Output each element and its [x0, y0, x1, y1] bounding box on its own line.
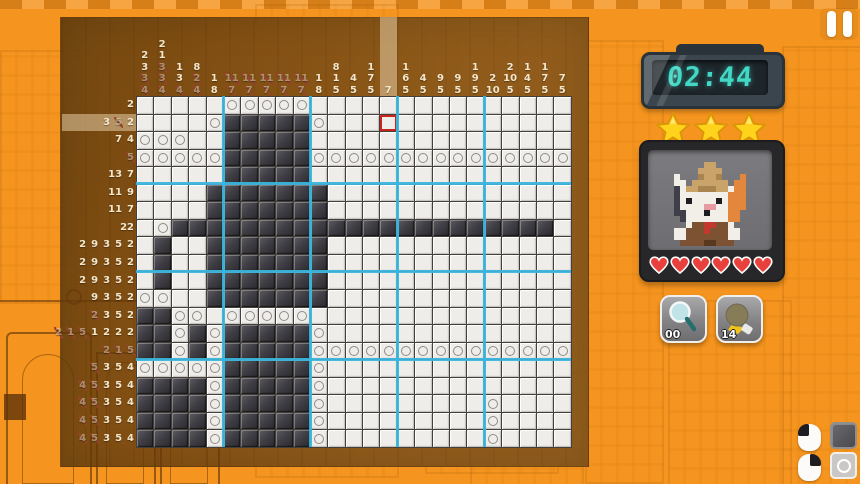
grid-cell-r7-c19[interactable]: [450, 202, 467, 220]
grid-cell-r10-c19[interactable]: [450, 255, 467, 273]
grid-cell-r8-c4[interactable]: [189, 220, 206, 238]
grid-cell-r12-c18[interactable]: [433, 290, 450, 308]
grid-cell-r14-c18[interactable]: [433, 325, 450, 343]
grid-cell-r10-c22[interactable]: [502, 255, 519, 273]
grid-cell-r2-c7[interactable]: [241, 115, 258, 133]
grid-cell-r7-c18[interactable]: [433, 202, 450, 220]
grid-cell-r4-c2[interactable]: [154, 150, 171, 168]
grid-cell-r19-c17[interactable]: [415, 413, 432, 431]
grid-cell-r3-c12[interactable]: [328, 132, 345, 150]
grid-cell-r10-c23[interactable]: [520, 255, 537, 273]
grid-cell-r12-c15[interactable]: [380, 290, 397, 308]
grid-cell-r4-c21[interactable]: [485, 150, 502, 168]
grid-cell-r16-c13[interactable]: [346, 360, 363, 378]
grid-cell-r16-c5[interactable]: [207, 360, 224, 378]
grid-cell-r2-c25[interactable]: [554, 115, 571, 133]
grid-cell-r13-c4[interactable]: [189, 308, 206, 326]
grid-cell-r5-c22[interactable]: [502, 167, 519, 185]
grid-cell-r15-c7[interactable]: [241, 343, 258, 361]
grid-cell-r11-c23[interactable]: [520, 272, 537, 290]
grid-cell-r20-c20[interactable]: [467, 430, 484, 448]
grid-cell-r7-c6[interactable]: [224, 202, 241, 220]
grid-cell-r17-c23[interactable]: [520, 378, 537, 396]
grid-cell-r1-c4[interactable]: [189, 97, 206, 115]
grid-cell-r16-c23[interactable]: [520, 360, 537, 378]
grid-cell-r12-c23[interactable]: [520, 290, 537, 308]
grid-cell-r15-c6[interactable]: [224, 343, 241, 361]
grid-cell-r5-c11[interactable]: [311, 167, 328, 185]
grid-cell-r8-c13[interactable]: [346, 220, 363, 238]
grid-cell-r14-c12[interactable]: [328, 325, 345, 343]
grid-cell-r6-c22[interactable]: [502, 185, 519, 203]
magnifier-powerup-button[interactable]: 00: [660, 295, 707, 343]
grid-cell-r14-c13[interactable]: [346, 325, 363, 343]
grid-cell-r19-c23[interactable]: [520, 413, 537, 431]
grid-cell-r10-c18[interactable]: [433, 255, 450, 273]
grid-cell-r14-c14[interactable]: [363, 325, 380, 343]
grid-cell-r10-c11[interactable]: [311, 255, 328, 273]
grid-cell-r4-c6[interactable]: [224, 150, 241, 168]
grid-cell-r8-c11[interactable]: [311, 220, 328, 238]
grid-cell-r10-c12[interactable]: [328, 255, 345, 273]
grid-cell-r13-c12[interactable]: [328, 308, 345, 326]
grid-cell-r20-c10[interactable]: [294, 430, 311, 448]
grid-cell-r14-c23[interactable]: [520, 325, 537, 343]
grid-cell-r2-c18[interactable]: [433, 115, 450, 133]
grid-cell-r10-c13[interactable]: [346, 255, 363, 273]
grid-cell-r8-c15[interactable]: [380, 220, 397, 238]
grid-cell-r9-c25[interactable]: [554, 237, 571, 255]
grid-cell-r10-c7[interactable]: [241, 255, 258, 273]
grid-cell-r18-c11[interactable]: [311, 395, 328, 413]
grid-cell-r14-c19[interactable]: [450, 325, 467, 343]
grid-cell-r12-c14[interactable]: [363, 290, 380, 308]
grid-cell-r4-c11[interactable]: [311, 150, 328, 168]
grid-cell-r14-c9[interactable]: [276, 325, 293, 343]
grid-cell-r15-c20[interactable]: [467, 343, 484, 361]
grid-cell-r20-c7[interactable]: [241, 430, 258, 448]
grid-cell-r13-c14[interactable]: [363, 308, 380, 326]
grid-cell-r17-c3[interactable]: [172, 378, 189, 396]
grid-cell-r17-c2[interactable]: [154, 378, 171, 396]
grid-cell-r3-c16[interactable]: [398, 132, 415, 150]
grid-cell-r11-c7[interactable]: [241, 272, 258, 290]
grid-cell-r1-c11[interactable]: [311, 97, 328, 115]
grid-cell-r2-c16[interactable]: [398, 115, 415, 133]
grid-cell-r10-c16[interactable]: [398, 255, 415, 273]
grid-cell-r16-c9[interactable]: [276, 360, 293, 378]
grid-cell-r15-c11[interactable]: [311, 343, 328, 361]
grid-cell-r15-c4[interactable]: [189, 343, 206, 361]
grid-cell-r12-c6[interactable]: [224, 290, 241, 308]
grid-cell-r15-c21[interactable]: [485, 343, 502, 361]
grid-cell-r15-c5[interactable]: [207, 343, 224, 361]
grid-cell-r9-c9[interactable]: [276, 237, 293, 255]
grid-cell-r1-c8[interactable]: [259, 97, 276, 115]
grid-cell-r5-c5[interactable]: [207, 167, 224, 185]
grid-cell-r19-c16[interactable]: [398, 413, 415, 431]
grid-cell-r11-c2[interactable]: [154, 272, 171, 290]
grid-cell-r7-c4[interactable]: [189, 202, 206, 220]
grid-cell-r7-c23[interactable]: [520, 202, 537, 220]
grid-cell-r1-c14[interactable]: [363, 97, 380, 115]
grid-cell-r3-c1[interactable]: [137, 132, 154, 150]
grid-cell-r14-c25[interactable]: [554, 325, 571, 343]
grid-cell-r16-c25[interactable]: [554, 360, 571, 378]
grid-cell-r13-c3[interactable]: [172, 308, 189, 326]
grid-cell-r20-c12[interactable]: [328, 430, 345, 448]
grid-cell-r8-c1[interactable]: [137, 220, 154, 238]
grid-cell-r6-c20[interactable]: [467, 185, 484, 203]
grid-cell-r5-c2[interactable]: [154, 167, 171, 185]
grid-cell-r6-c18[interactable]: [433, 185, 450, 203]
grid-cell-r12-c21[interactable]: [485, 290, 502, 308]
grid-cell-r19-c4[interactable]: [189, 413, 206, 431]
grid-cell-r19-c9[interactable]: [276, 413, 293, 431]
grid-cell-r2-c1[interactable]: [137, 115, 154, 133]
grid-cell-r15-c12[interactable]: [328, 343, 345, 361]
pause-button[interactable]: [820, 8, 858, 40]
grid-cell-r15-c17[interactable]: [415, 343, 432, 361]
grid-cell-r13-c18[interactable]: [433, 308, 450, 326]
grid-cell-r13-c20[interactable]: [467, 308, 484, 326]
grid-cell-r18-c15[interactable]: [380, 395, 397, 413]
grid-cell-r8-c17[interactable]: [415, 220, 432, 238]
grid-cell-r17-c11[interactable]: [311, 378, 328, 396]
grid-cell-r13-c7[interactable]: [241, 308, 258, 326]
grid-cell-r11-c20[interactable]: [467, 272, 484, 290]
grid-cell-r4-c9[interactable]: [276, 150, 293, 168]
grid-cell-r18-c25[interactable]: [554, 395, 571, 413]
grid-cell-r14-c16[interactable]: [398, 325, 415, 343]
grid-cell-r1-c6[interactable]: [224, 97, 241, 115]
grid-cell-r11-c13[interactable]: [346, 272, 363, 290]
grid-cell-r6-c3[interactable]: [172, 185, 189, 203]
grid-cell-r18-c1[interactable]: [137, 395, 154, 413]
grid-cell-r4-c5[interactable]: [207, 150, 224, 168]
grid-cell-r3-c23[interactable]: [520, 132, 537, 150]
grid-cell-r3-c5[interactable]: [207, 132, 224, 150]
grid-cell-r4-c16[interactable]: [398, 150, 415, 168]
grid-cell-r20-c9[interactable]: [276, 430, 293, 448]
grid-cell-r4-c15[interactable]: [380, 150, 397, 168]
grid-cell-r5-c12[interactable]: [328, 167, 345, 185]
grid-cell-r11-c19[interactable]: [450, 272, 467, 290]
grid-cell-r16-c18[interactable]: [433, 360, 450, 378]
grid-cell-r3-c8[interactable]: [259, 132, 276, 150]
grid-cell-r18-c21[interactable]: [485, 395, 502, 413]
grid-cell-r20-c5[interactable]: [207, 430, 224, 448]
grid-cell-r1-c24[interactable]: [537, 97, 554, 115]
grid-cell-r6-c1[interactable]: [137, 185, 154, 203]
grid-cell-r5-c23[interactable]: [520, 167, 537, 185]
grid-cell-r1-c25[interactable]: [554, 97, 571, 115]
grid-cell-r12-c25[interactable]: [554, 290, 571, 308]
grid-cell-r3-c20[interactable]: [467, 132, 484, 150]
grid-cell-r9-c21[interactable]: [485, 237, 502, 255]
grid-cell-r8-c8[interactable]: [259, 220, 276, 238]
grid-cell-r20-c13[interactable]: [346, 430, 363, 448]
grid-cell-r17-c20[interactable]: [467, 378, 484, 396]
grid-cell-r11-c4[interactable]: [189, 272, 206, 290]
grid-cell-r3-c6[interactable]: [224, 132, 241, 150]
grid-cell-r2-c9[interactable]: [276, 115, 293, 133]
grid-cell-r10-c24[interactable]: [537, 255, 554, 273]
grid-cell-r1-c2[interactable]: [154, 97, 171, 115]
grid-cell-r18-c22[interactable]: [502, 395, 519, 413]
grid-cell-r20-c2[interactable]: [154, 430, 171, 448]
grid-cell-r7-c13[interactable]: [346, 202, 363, 220]
grid-cell-r6-c21[interactable]: [485, 185, 502, 203]
grid-cell-r6-c16[interactable]: [398, 185, 415, 203]
grid-cell-r4-c3[interactable]: [172, 150, 189, 168]
grid-cell-r9-c19[interactable]: [450, 237, 467, 255]
grid-cell-r15-c23[interactable]: [520, 343, 537, 361]
grid-cell-r17-c17[interactable]: [415, 378, 432, 396]
grid-cell-r5-c8[interactable]: [259, 167, 276, 185]
grid-cell-r18-c12[interactable]: [328, 395, 345, 413]
fill-tool-tile[interactable]: [830, 422, 857, 449]
grid-cell-r19-c22[interactable]: [502, 413, 519, 431]
grid-cell-r13-c17[interactable]: [415, 308, 432, 326]
grid-cell-r18-c6[interactable]: [224, 395, 241, 413]
grid-cell-r11-c5[interactable]: [207, 272, 224, 290]
grid-cell-r8-c14[interactable]: [363, 220, 380, 238]
grid-cell-r16-c6[interactable]: [224, 360, 241, 378]
grid-cell-r2-c4[interactable]: [189, 115, 206, 133]
grid-cell-r13-c24[interactable]: [537, 308, 554, 326]
grid-cell-r13-c19[interactable]: [450, 308, 467, 326]
grid-cell-r10-c4[interactable]: [189, 255, 206, 273]
grid-cell-r18-c24[interactable]: [537, 395, 554, 413]
grid-cell-r20-c8[interactable]: [259, 430, 276, 448]
grid-cell-r18-c13[interactable]: [346, 395, 363, 413]
grid-cell-r20-c24[interactable]: [537, 430, 554, 448]
grid-cell-r2-c19[interactable]: [450, 115, 467, 133]
grid-cell-r1-c17[interactable]: [415, 97, 432, 115]
grid-cell-r4-c4[interactable]: [189, 150, 206, 168]
grid-cell-r3-c7[interactable]: [241, 132, 258, 150]
grid-cell-r18-c23[interactable]: [520, 395, 537, 413]
grid-cell-r11-c15[interactable]: [380, 272, 397, 290]
grid-cell-r2-c22[interactable]: [502, 115, 519, 133]
grid-cell-r19-c12[interactable]: [328, 413, 345, 431]
grid-cell-r8-c10[interactable]: [294, 220, 311, 238]
grid-cell-r3-c22[interactable]: [502, 132, 519, 150]
grid-cell-r7-c10[interactable]: [294, 202, 311, 220]
grid-cell-r17-c14[interactable]: [363, 378, 380, 396]
grid-cell-r4-c17[interactable]: [415, 150, 432, 168]
grid-cell-r9-c6[interactable]: [224, 237, 241, 255]
grid-cell-r10-c5[interactable]: [207, 255, 224, 273]
grid-cell-r7-c3[interactable]: [172, 202, 189, 220]
grid-cell-r10-c17[interactable]: [415, 255, 432, 273]
grid-cell-r19-c5[interactable]: [207, 413, 224, 431]
grid-cell-r6-c23[interactable]: [520, 185, 537, 203]
grid-cell-r12-c13[interactable]: [346, 290, 363, 308]
grid-cell-r9-c3[interactable]: [172, 237, 189, 255]
grid-cell-r1-c19[interactable]: [450, 97, 467, 115]
grid-cell-r17-c4[interactable]: [189, 378, 206, 396]
grid-cell-r17-c9[interactable]: [276, 378, 293, 396]
grid-cell-r1-c13[interactable]: [346, 97, 363, 115]
grid-cell-r15-c25[interactable]: [554, 343, 571, 361]
grid-cell-r6-c25[interactable]: [554, 185, 571, 203]
grid-cell-r7-c9[interactable]: [276, 202, 293, 220]
grid-cell-r1-c7[interactable]: [241, 97, 258, 115]
grid-cell-r17-c1[interactable]: [137, 378, 154, 396]
grid-cell-r10-c25[interactable]: [554, 255, 571, 273]
grid-cell-r9-c16[interactable]: [398, 237, 415, 255]
grid-cell-r8-c21[interactable]: [485, 220, 502, 238]
grid-cell-r13-c1[interactable]: [137, 308, 154, 326]
grid-cell-r7-c20[interactable]: [467, 202, 484, 220]
grid-cell-r4-c13[interactable]: [346, 150, 363, 168]
grid-cell-r3-c2[interactable]: [154, 132, 171, 150]
grid-cell-r11-c16[interactable]: [398, 272, 415, 290]
grid-cell-r7-c17[interactable]: [415, 202, 432, 220]
grid-cell-r7-c24[interactable]: [537, 202, 554, 220]
grid-cell-r11-c12[interactable]: [328, 272, 345, 290]
grid-cell-r11-c9[interactable]: [276, 272, 293, 290]
grid-cell-r2-c11[interactable]: [311, 115, 328, 133]
grid-cell-r18-c10[interactable]: [294, 395, 311, 413]
grid-cell-r10-c9[interactable]: [276, 255, 293, 273]
grid-cell-r14-c17[interactable]: [415, 325, 432, 343]
grid-cell-r5-c16[interactable]: [398, 167, 415, 185]
grid-cell-r7-c25[interactable]: [554, 202, 571, 220]
grid-cell-r2-c24[interactable]: [537, 115, 554, 133]
grid-cell-r19-c19[interactable]: [450, 413, 467, 431]
grid-cell-r15-c8[interactable]: [259, 343, 276, 361]
grid-cell-r14-c10[interactable]: [294, 325, 311, 343]
grid-cell-r12-c2[interactable]: [154, 290, 171, 308]
grid-cell-r14-c7[interactable]: [241, 325, 258, 343]
grid-cell-r11-c1[interactable]: [137, 272, 154, 290]
grid-cell-r6-c13[interactable]: [346, 185, 363, 203]
grid-cell-r17-c8[interactable]: [259, 378, 276, 396]
grid-cell-r15-c10[interactable]: [294, 343, 311, 361]
grid-cell-r13-c23[interactable]: [520, 308, 537, 326]
grid-cell-r19-c13[interactable]: [346, 413, 363, 431]
grid-cell-r9-c8[interactable]: [259, 237, 276, 255]
grid-cell-r19-c18[interactable]: [433, 413, 450, 431]
grid-cell-r7-c1[interactable]: [137, 202, 154, 220]
grid-cell-r14-c20[interactable]: [467, 325, 484, 343]
grid-cell-r5-c4[interactable]: [189, 167, 206, 185]
grid-cell-r2-c14[interactable]: [363, 115, 380, 133]
grid-cell-r18-c4[interactable]: [189, 395, 206, 413]
grid-cell-r12-c4[interactable]: [189, 290, 206, 308]
grid-cell-r16-c10[interactable]: [294, 360, 311, 378]
grid-cell-r3-c10[interactable]: [294, 132, 311, 150]
grid-cell-r20-c22[interactable]: [502, 430, 519, 448]
grid-cell-r9-c17[interactable]: [415, 237, 432, 255]
grid-cell-r17-c5[interactable]: [207, 378, 224, 396]
grid-cell-r5-c24[interactable]: [537, 167, 554, 185]
grid-cell-r9-c20[interactable]: [467, 237, 484, 255]
grid-cell-r14-c8[interactable]: [259, 325, 276, 343]
grid-cell-r19-c20[interactable]: [467, 413, 484, 431]
grid-cell-r5-c21[interactable]: [485, 167, 502, 185]
grid-cell-r9-c2[interactable]: [154, 237, 171, 255]
grid-cell-r15-c1[interactable]: [137, 343, 154, 361]
grid-cell-r17-c15[interactable]: [380, 378, 397, 396]
grid-cell-r14-c22[interactable]: [502, 325, 519, 343]
grid-cell-r12-c17[interactable]: [415, 290, 432, 308]
grid-cell-r18-c18[interactable]: [433, 395, 450, 413]
grid-cell-r19-c11[interactable]: [311, 413, 328, 431]
grid-cell-r9-c13[interactable]: [346, 237, 363, 255]
grid-cell-r1-c10[interactable]: [294, 97, 311, 115]
grid-cell-r14-c24[interactable]: [537, 325, 554, 343]
grid-cell-r13-c13[interactable]: [346, 308, 363, 326]
grid-cell-r8-c23[interactable]: [520, 220, 537, 238]
grid-cell-r3-c21[interactable]: [485, 132, 502, 150]
grid-cell-r20-c6[interactable]: [224, 430, 241, 448]
grid-cell-r20-c4[interactable]: [189, 430, 206, 448]
grid-cell-r9-c11[interactable]: [311, 237, 328, 255]
grid-cell-r20-c19[interactable]: [450, 430, 467, 448]
grid-cell-r5-c3[interactable]: [172, 167, 189, 185]
grid-cell-r14-c1[interactable]: [137, 325, 154, 343]
grid-cell-r1-c16[interactable]: [398, 97, 415, 115]
grid-cell-r4-c22[interactable]: [502, 150, 519, 168]
grid-cell-r18-c5[interactable]: [207, 395, 224, 413]
grid-cell-r10-c3[interactable]: [172, 255, 189, 273]
grid-cell-r13-c16[interactable]: [398, 308, 415, 326]
grid-cell-r13-c10[interactable]: [294, 308, 311, 326]
grid-cell-r7-c11[interactable]: [311, 202, 328, 220]
grid-cell-r11-c22[interactable]: [502, 272, 519, 290]
grid-cell-r12-c19[interactable]: [450, 290, 467, 308]
grid-cell-r16-c8[interactable]: [259, 360, 276, 378]
grid-cell-r16-c19[interactable]: [450, 360, 467, 378]
grid-cell-r10-c8[interactable]: [259, 255, 276, 273]
grid-cell-r13-c11[interactable]: [311, 308, 328, 326]
grid-cell-r9-c5[interactable]: [207, 237, 224, 255]
grid-cell-r9-c7[interactable]: [241, 237, 258, 255]
grid-cell-r18-c7[interactable]: [241, 395, 258, 413]
grid-cell-r17-c6[interactable]: [224, 378, 241, 396]
grid-cell-r3-c3[interactable]: [172, 132, 189, 150]
grid-cell-r16-c11[interactable]: [311, 360, 328, 378]
grid-cell-r17-c7[interactable]: [241, 378, 258, 396]
grid-cell-r5-c10[interactable]: [294, 167, 311, 185]
grid-cell-r3-c25[interactable]: [554, 132, 571, 150]
grid-cell-r11-c11[interactable]: [311, 272, 328, 290]
grid-cell-r12-c24[interactable]: [537, 290, 554, 308]
grid-cell-r20-c14[interactable]: [363, 430, 380, 448]
grid-cell-r7-c21[interactable]: [485, 202, 502, 220]
grid-cell-r1-c21[interactable]: [485, 97, 502, 115]
grid-cell-r13-c21[interactable]: [485, 308, 502, 326]
grid-cell-r20-c23[interactable]: [520, 430, 537, 448]
grid-cell-r12-c5[interactable]: [207, 290, 224, 308]
grid-cell-r15-c18[interactable]: [433, 343, 450, 361]
grid-cell-r4-c18[interactable]: [433, 150, 450, 168]
grid-cell-r19-c2[interactable]: [154, 413, 171, 431]
grid-cell-r5-c20[interactable]: [467, 167, 484, 185]
grid-cell-r13-c22[interactable]: [502, 308, 519, 326]
grid-cell-r18-c16[interactable]: [398, 395, 415, 413]
grid-cell-r18-c20[interactable]: [467, 395, 484, 413]
grid-cell-r7-c7[interactable]: [241, 202, 258, 220]
grid-cell-r16-c16[interactable]: [398, 360, 415, 378]
grid-cell-r4-c19[interactable]: [450, 150, 467, 168]
grid-cell-r2-c21[interactable]: [485, 115, 502, 133]
grid-cell-r18-c17[interactable]: [415, 395, 432, 413]
